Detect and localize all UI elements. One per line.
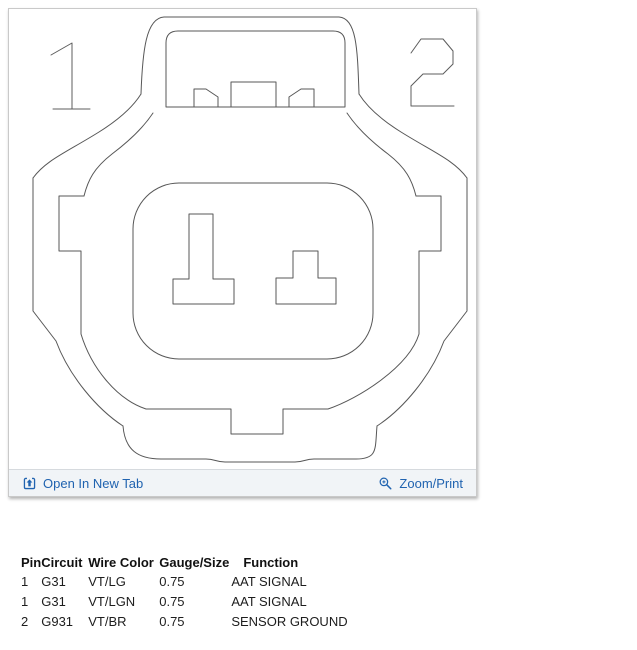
cell-pin: 1 <box>21 575 41 595</box>
connector-outline <box>33 17 467 462</box>
cell-function: AAT SIGNAL <box>229 575 347 595</box>
open-in-new-tab-link[interactable]: Open In New Tab <box>22 476 143 491</box>
zoom-print-link[interactable]: Zoom/Print <box>378 476 463 491</box>
cell-function: SENSOR GROUND <box>229 615 347 635</box>
pin-label-2 <box>411 39 454 106</box>
cell-wire-color: VT/BR <box>88 615 159 635</box>
open-in-new-tab-label: Open In New Tab <box>43 477 143 490</box>
cell-circuit: G931 <box>41 615 88 635</box>
cell-gauge-size: 0.75 <box>159 595 229 615</box>
pinout-table: Pin Circuit Wire Color Gauge/Size Functi… <box>21 556 348 635</box>
table-header-row: Pin Circuit Wire Color Gauge/Size Functi… <box>21 556 348 575</box>
cell-wire-color: VT/LGN <box>88 595 159 615</box>
zoom-print-label: Zoom/Print <box>399 477 463 490</box>
viewer-toolbar: Open In New Tab Zoom/Print <box>9 469 476 496</box>
header-circuit: Circuit <box>41 556 88 575</box>
pin-label-1 <box>51 43 90 109</box>
open-in-new-tab-icon <box>22 476 37 491</box>
cell-pin: 1 <box>21 595 41 615</box>
magnifier-plus-icon <box>378 476 393 491</box>
cell-function: AAT SIGNAL <box>229 595 347 615</box>
table-row: 1 G31 VT/LG 0.75 AAT SIGNAL <box>21 575 348 595</box>
cell-gauge-size: 0.75 <box>159 615 229 635</box>
cell-circuit: G31 <box>41 575 88 595</box>
header-gauge-size: Gauge/Size <box>159 556 229 575</box>
cell-circuit: G31 <box>41 595 88 615</box>
page: { "viewer": { "toolbar": { "open_in_new_… <box>0 0 637 650</box>
cell-gauge-size: 0.75 <box>159 575 229 595</box>
connector-face-diagram <box>9 9 476 469</box>
table-row: 1 G31 VT/LGN 0.75 AAT SIGNAL <box>21 595 348 615</box>
connector-viewer-frame: Open In New Tab Zoom/Print <box>8 8 477 497</box>
table-row: 2 G931 VT/BR 0.75 SENSOR GROUND <box>21 615 348 635</box>
header-function: Function <box>229 556 347 575</box>
header-pin: Pin <box>21 556 41 575</box>
header-wire-color: Wire Color <box>88 556 159 575</box>
cell-pin: 2 <box>21 615 41 635</box>
connector-diagram-area <box>9 9 476 469</box>
cell-wire-color: VT/LG <box>88 575 159 595</box>
